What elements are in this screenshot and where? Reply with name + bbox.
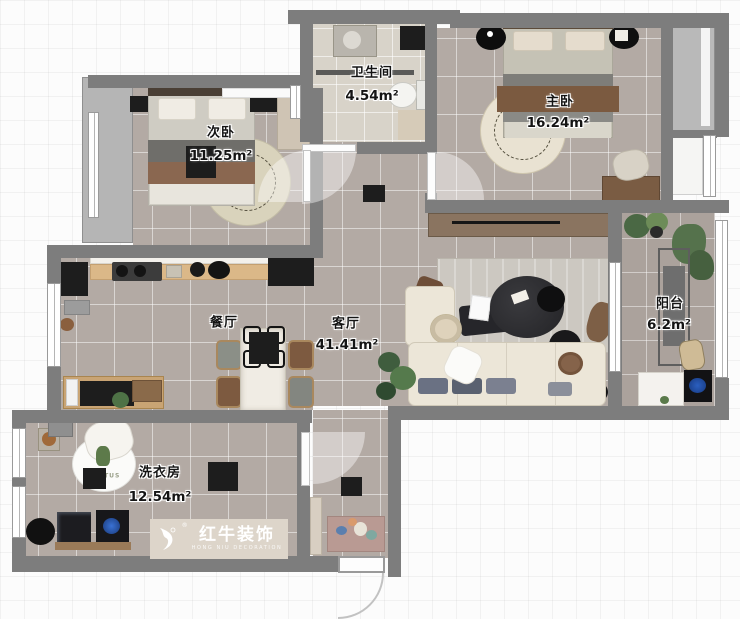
bay-window-glass (88, 112, 99, 218)
stove-burner-2 (134, 265, 146, 277)
registered-mark: ® (182, 522, 188, 529)
doormat-motif-3 (366, 530, 377, 540)
bedroom2-nightstand-right (250, 96, 278, 112)
knit-pouf (430, 314, 462, 344)
room-area-living: 41.41m² (316, 337, 379, 353)
column-hallway (363, 185, 385, 202)
cutting-board (166, 265, 182, 278)
wall-bathroom-right (425, 24, 437, 144)
wall-laundry-top (12, 410, 312, 423)
sofa (408, 342, 606, 406)
bathroom-vanity-sink (343, 31, 361, 49)
watermark-banner: ® 红牛装饰 HONG NIU DECORATION (150, 519, 288, 559)
wall-bathroom-bottom-right (357, 142, 437, 154)
laundry-tv (57, 512, 91, 542)
room-area-bedroom2: 11.25m² (190, 148, 253, 164)
watermark-brand: 红牛装饰 (199, 527, 275, 544)
master-blanket-gray (503, 74, 613, 86)
laundry-door-leaf (301, 432, 310, 486)
bedroom2-door-leaf (303, 150, 311, 202)
room-label-balcony: 阳台 (656, 293, 684, 312)
kitchen-sink-small (190, 262, 205, 277)
room-area-laundry: 12.54m² (129, 489, 192, 505)
room-area-master: 16.24m² (527, 115, 590, 131)
window-kitchen-left (47, 283, 61, 367)
wall-master-top (450, 13, 715, 28)
living-plant-leaf-3 (376, 382, 396, 400)
master-pillow-right (565, 31, 605, 51)
balcony-sliding-door (609, 262, 621, 372)
entrance-door-swing (338, 573, 384, 619)
dining-chair-left-top (216, 340, 242, 370)
bedroom2-nightstand-left (130, 96, 148, 112)
wall-bathroom-top (288, 10, 460, 24)
laundry-washer-lid (103, 518, 120, 534)
balcony-fern-2 (688, 250, 714, 280)
tv-screen (452, 221, 560, 224)
room-label-bedroom2: 次卧 (207, 122, 235, 141)
entrance-door-frame (338, 556, 385, 573)
room-label-living: 客厅 (332, 313, 360, 332)
tv-console (428, 213, 610, 237)
master-nightstand-left (476, 25, 506, 50)
laundry-round-chair (26, 518, 55, 545)
kitchen-tall-cabinet (268, 256, 314, 286)
wall-right-outer-upper (715, 13, 729, 137)
room-label-master: 主卧 (546, 91, 574, 110)
window-balcony-right (715, 220, 728, 378)
sofa-pillow-4 (548, 382, 572, 396)
kitchen-plant-pot (60, 318, 74, 331)
bedroom2-bed-foot (150, 184, 253, 204)
window-laundry-left-1 (12, 428, 26, 478)
room-label-dining: 餐厅 (210, 312, 238, 331)
desk-plant (112, 392, 129, 408)
dining-chair-right-top (288, 340, 314, 370)
desk-books (66, 379, 78, 406)
room-area-bathroom: 4.54m² (345, 88, 398, 104)
master-closet-door-line (701, 28, 710, 126)
column-corridor (341, 477, 362, 496)
kitchen-side-box (64, 300, 90, 315)
room-label-laundry: 洗衣房 (139, 462, 181, 481)
sofa-pillow-1 (418, 378, 448, 394)
master-pillow-left (513, 31, 553, 51)
window-laundry-left-2 (12, 486, 26, 538)
window-bathroom-left (290, 85, 301, 119)
cactus-plant (96, 446, 110, 466)
window-master-bay (703, 135, 716, 197)
wall-living-bottom (390, 406, 729, 420)
balcony-washer-door (689, 378, 706, 393)
fridge (57, 262, 88, 296)
kitchen-sink-large (208, 261, 230, 279)
laundry-tv-board (55, 542, 131, 550)
master-nightstand-left-dot (487, 31, 493, 37)
sofa-pillow-3 (486, 378, 516, 394)
master-door-leaf (427, 152, 436, 200)
bedroom2-pillow-right (208, 98, 246, 120)
floor-plan: CACTUS (0, 0, 740, 612)
wall-master-right (661, 28, 673, 200)
dining-chair-right-bottom (288, 376, 314, 408)
wall-corridor-right (388, 406, 401, 577)
desk-organizer (132, 380, 162, 402)
hongniu-logo-icon (156, 526, 178, 552)
shoe-cabinet (310, 497, 322, 555)
balcony-plant-pot (650, 226, 663, 238)
bathroom-mat (398, 110, 427, 140)
balcony-small-plant (660, 396, 669, 404)
doormat-motif-4 (348, 518, 357, 526)
column-laundry-right (208, 462, 238, 491)
column-laundry-left (83, 468, 106, 489)
bedroom2-pillow-left (158, 98, 196, 120)
room-area-balcony: 6.2m² (647, 317, 691, 333)
bathroom-corner-cabinet (400, 26, 427, 50)
room-label-bathroom: 卫生间 (351, 62, 393, 81)
watermark-subtitle: HONG NIU DECORATION (192, 546, 283, 551)
wall-master-bottom (437, 200, 729, 213)
master-nightstand-right-inner (615, 30, 628, 41)
wall-bedroom2-bottom (47, 245, 313, 258)
magazine (468, 295, 491, 322)
wall-bedroom2-top (88, 75, 313, 88)
side-table-black (537, 286, 565, 312)
dining-table-tray (249, 332, 279, 364)
doormat-motif-1 (336, 526, 347, 535)
stove-burner-1 (116, 265, 128, 277)
sofa-pillow-brown (558, 352, 583, 375)
dining-chair-left-bottom (216, 376, 242, 408)
